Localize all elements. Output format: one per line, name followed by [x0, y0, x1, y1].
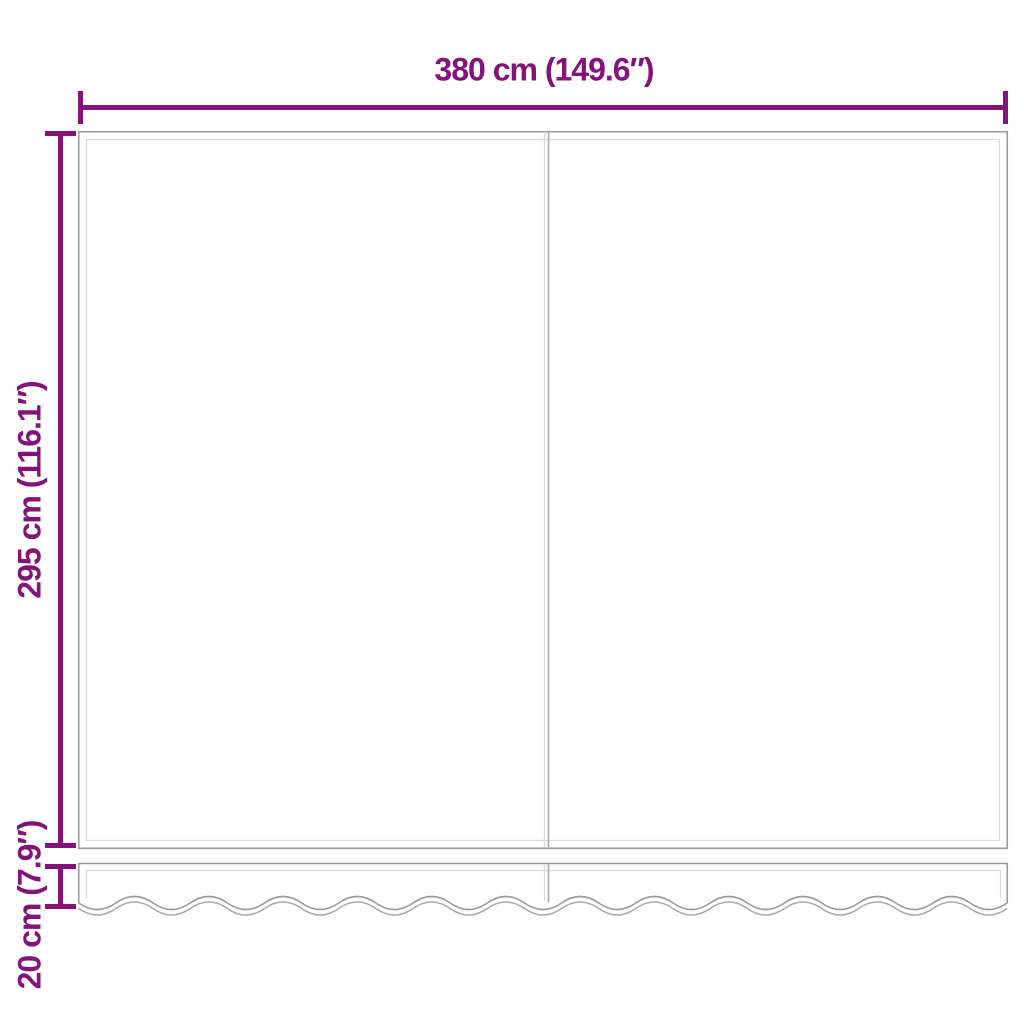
- valance-dimension-endbar-bottom: [45, 904, 76, 909]
- panel-hem-line: [87, 140, 1000, 841]
- height-dimension-label: 295 cm (116.1″): [12, 381, 49, 598]
- width-dimension-label: 380 cm (149.6″): [434, 52, 653, 89]
- width-dimension-endbar-left: [78, 91, 83, 124]
- width-dimension-line: [80, 105, 1006, 110]
- panel-outline: [79, 132, 1008, 849]
- width-dimension-endbar-right: [1003, 91, 1008, 124]
- valance-dimension-line: [58, 866, 63, 906]
- product-dimension-diagram: 380 cm (149.6″) 295 cm (116.1″) 20 cm (7…: [0, 0, 1024, 1024]
- height-dimension-endbar-bottom: [45, 843, 76, 848]
- valance-hem-line: [87, 871, 1001, 899]
- valance-dimension-endbar-top: [45, 864, 76, 869]
- fabric-drawing: [0, 0, 1024, 1024]
- height-dimension-endbar-top: [45, 131, 76, 136]
- height-dimension-line: [58, 133, 63, 846]
- valance-dimension-label: 20 cm (7.9″): [12, 821, 49, 990]
- valance-outline: [79, 864, 1008, 904]
- valance-wave-bottom: [79, 902, 1008, 915]
